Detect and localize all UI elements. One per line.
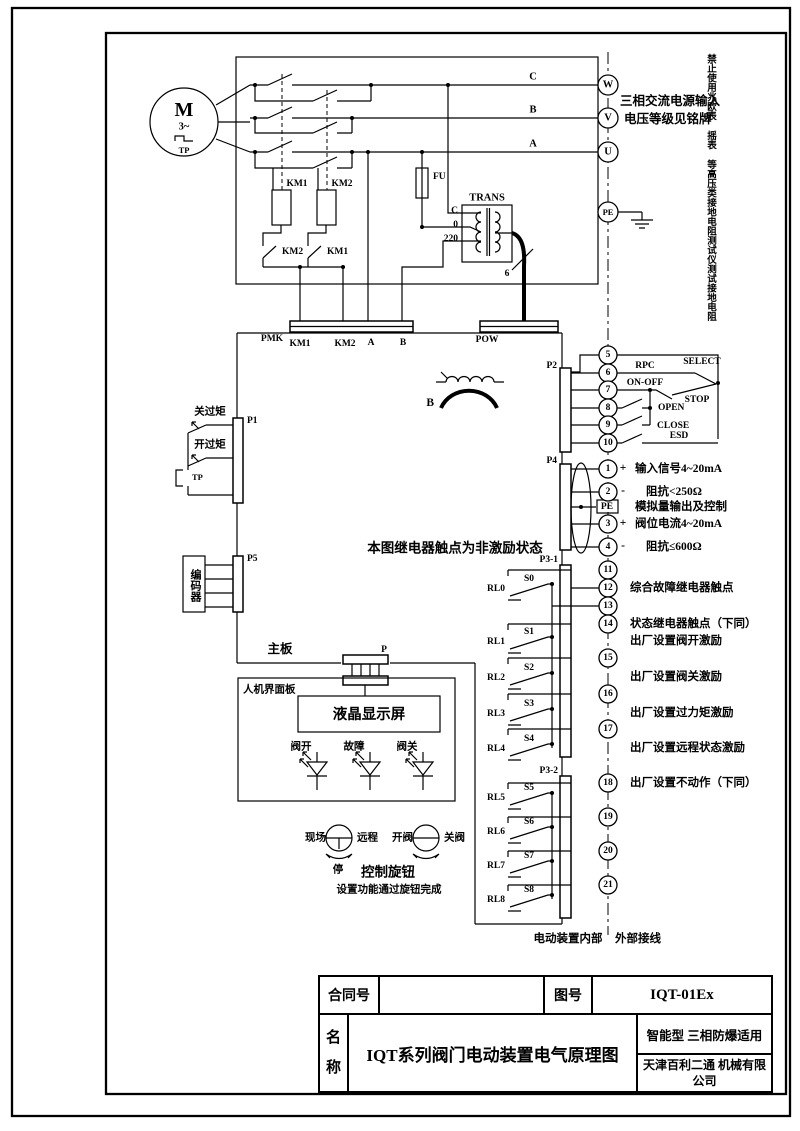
- schematic-page: M 3~ TP KM1 KM2 KM2 KM1 FU: [0, 0, 800, 1131]
- contract-no-label: 合同号: [318, 975, 380, 1015]
- pin-220-label: 220: [444, 234, 459, 244]
- figure-no-value: IQT-01Ex: [591, 975, 773, 1015]
- pin-c-label: C: [451, 206, 458, 216]
- rl8-label: RL8: [487, 895, 505, 905]
- terminal-1: 1: [606, 464, 611, 474]
- relay-contacts: RL0 S0 RL1 S1 RL2 S2 RL3 S3 RL4 S4 RL5 S…: [487, 570, 599, 911]
- rpc-label: RPC: [635, 361, 655, 371]
- hmi-label: 人机界面板: [243, 683, 296, 696]
- rl1-label: RL1: [487, 637, 505, 647]
- terminal-20: 20: [603, 846, 613, 856]
- contactor-coils: KM1 KM2 KM2 KM1: [263, 168, 353, 321]
- terminal-17: 17: [603, 724, 613, 734]
- terminal-6: 6: [606, 368, 611, 378]
- fuse-symbol: FU: [416, 152, 446, 227]
- motor-letter: M: [175, 99, 194, 121]
- rl5-label: RL5: [487, 793, 505, 803]
- p4-impedance-out-label: 阻抗≤600Ω: [646, 539, 702, 553]
- p31-note1: 综合故障继电器触点: [630, 580, 734, 594]
- strip-a-label: A: [368, 338, 375, 348]
- terminal-21: 21: [603, 880, 613, 890]
- rl4-label: RL4: [487, 744, 505, 754]
- ct-b-label: B: [426, 397, 434, 409]
- connector-strips: PMK KM1 KM2 A B POW: [261, 321, 558, 349]
- numbered-terminals: 5 6 7 8 9 10 1 2 3 4 11 12 13 14 15 16 1…: [599, 346, 617, 894]
- p-stack-connector: P: [343, 645, 388, 696]
- terminal-u: U: [604, 147, 612, 158]
- cable-count-label: 6: [505, 269, 510, 279]
- onoff-label: ON-OFF: [627, 378, 664, 388]
- motor-phase: 3~: [179, 122, 190, 133]
- rl3-label: RL3: [487, 709, 505, 719]
- figure-no-label: 图号: [543, 975, 593, 1015]
- terminal-11: 11: [604, 565, 613, 575]
- p4-signal-in-label: 输入信号4~20mA: [635, 461, 723, 475]
- p31-note4: 出厂设置阀关激励: [630, 669, 722, 683]
- s2-label: S2: [524, 663, 534, 673]
- terminal-19: 19: [603, 812, 613, 822]
- knob-closevalve-label: 关阀: [444, 831, 465, 844]
- phase-c-label: C: [529, 72, 537, 83]
- terminal-w: W: [603, 80, 614, 91]
- p32-note1: 出厂设置不动作（下同）: [630, 775, 757, 789]
- terminal-14: 14: [603, 619, 613, 629]
- p31-note6: 出厂设置远程状态激励: [630, 740, 745, 754]
- motor-symbol: M 3~ TP: [150, 85, 250, 156]
- led-closed-label: 阀关: [397, 740, 418, 753]
- p4-plus1: +: [620, 462, 627, 474]
- p32-label: P3-2: [540, 766, 559, 776]
- schematic-drawing: M 3~ TP KM1 KM2 KM2 KM1 FU: [0, 0, 800, 1131]
- terminal-8: 8: [606, 403, 611, 413]
- s3-label: S3: [524, 699, 534, 709]
- contract-no-value: [378, 975, 545, 1015]
- rl6-label: RL6: [487, 827, 505, 837]
- p4-impedance-in-label: 阻抗<250Ω: [646, 484, 702, 498]
- rl7-label: RL7: [487, 861, 505, 871]
- terminal-16: 16: [603, 689, 613, 699]
- led-closed-icon: [406, 752, 433, 790]
- led-open-label: 阀开: [291, 740, 312, 753]
- led-open-icon: [300, 752, 327, 790]
- p5-label: P5: [247, 554, 258, 564]
- p4-plus2: +: [620, 517, 627, 529]
- p31-note3: 出厂设置阀开激励: [630, 633, 722, 647]
- knob-openvalve-label: 开阀: [392, 831, 413, 844]
- current-transformer-icon: B: [426, 372, 504, 409]
- close-label: CLOSE: [657, 421, 689, 431]
- terminal-12: 12: [603, 583, 613, 593]
- rl0-label: RL0: [487, 584, 505, 594]
- terminal-pe: PE: [603, 207, 614, 217]
- knob-stop-label: 停: [333, 863, 344, 876]
- motor-tp: TP: [179, 145, 190, 155]
- open-torque-label: 开过矩: [194, 438, 226, 451]
- strip-km1-label: KM1: [289, 339, 310, 349]
- contactor-link-lines: [282, 74, 327, 190]
- strip-b-label: B: [400, 338, 407, 348]
- control-knobs: 现场 远程 停 开阀 关阀 控制旋钮 设置功能通过旋钮完成: [305, 825, 465, 896]
- terminal-18: 18: [603, 778, 613, 788]
- pin-0-label: 0: [453, 220, 458, 230]
- transformer-symbol: TRANS C 0 220: [402, 85, 512, 321]
- encoder-label: 编码器: [186, 560, 203, 610]
- knob-remote-label: 远程: [357, 831, 378, 844]
- p4-signal-out-label: 阀位电流4~20mA: [635, 516, 723, 530]
- terminal-5: 5: [606, 350, 611, 360]
- s6-label: S6: [524, 817, 534, 827]
- external-label: 外部接线: [614, 931, 661, 945]
- stop-label: STOP: [685, 395, 710, 405]
- megger-warning-note: 禁止使用兆欧表 摇表 等高压类接地电阻测试仪测试接地电阻: [702, 54, 717, 344]
- lcd-label: 液晶显示屏: [333, 705, 406, 723]
- p31-note5: 出厂设置过力矩激励: [630, 705, 734, 719]
- name-label: 名 称: [318, 1013, 349, 1093]
- s7-label: S7: [524, 851, 534, 861]
- transformer-label: TRANS: [469, 193, 505, 204]
- km2-aux-label: KM2: [282, 247, 303, 257]
- p31-note2: 状态继电器触点（下同）: [630, 616, 757, 630]
- knob-local-label: 现场: [305, 831, 326, 844]
- hmi-panel: 人机界面板 液晶显示屏 阀开 故障 阀关: [238, 678, 455, 801]
- terminal-7: 7: [606, 385, 611, 395]
- type-note: 智能型 三相防爆适用: [636, 1013, 773, 1055]
- open-label: OPEN: [658, 403, 685, 413]
- tp-contact-label: TP: [192, 472, 203, 482]
- pulse-wave-icon: [175, 136, 193, 141]
- drawing-name: IQT系列阀门电动装置电气原理图: [347, 1013, 638, 1093]
- fuse-label: FU: [433, 172, 446, 182]
- km1-aux-label: KM1: [327, 247, 348, 257]
- s8-label: S8: [524, 885, 534, 895]
- terminal-15: 15: [603, 653, 613, 663]
- pow-label: POW: [476, 335, 499, 345]
- km1-coil-label: KM1: [286, 179, 307, 189]
- terminal-10: 10: [603, 438, 613, 448]
- p4-wiring: PE + - + - 输入信号4~20mA 阻抗<250Ω 模拟量输出及控制 阀…: [571, 461, 727, 553]
- select-label: SELECT: [683, 357, 721, 367]
- knob-title: 控制旋钮: [361, 864, 415, 880]
- power-note-2: 电压等级见铭牌: [624, 111, 712, 126]
- knob-note: 设置功能通过旋钮完成: [337, 883, 442, 896]
- p4-minus1: -: [621, 485, 625, 497]
- phase-b-label: B: [529, 105, 536, 116]
- company-name: 天津百利二通 机械有限公司: [636, 1053, 773, 1093]
- phase-wiring: [250, 74, 598, 190]
- ground-icon: [618, 212, 653, 228]
- s5-label: S5: [524, 783, 534, 793]
- p4-pe-label: PE: [601, 502, 613, 512]
- s4-label: S4: [524, 734, 534, 744]
- p4-label: P4: [546, 456, 557, 466]
- terminal-9: 9: [606, 420, 611, 430]
- p1-label: P1: [247, 416, 258, 426]
- right-connector-bars: P2 P4 P3-1 P3-2: [540, 361, 571, 918]
- mainboard-label: 主板: [267, 641, 293, 656]
- close-torque-label: 关过矩: [194, 405, 226, 418]
- power-cable: 6: [505, 233, 533, 321]
- terminal-3: 3: [606, 519, 611, 529]
- internal-label: 电动装置内部: [534, 931, 603, 945]
- p4-minus2: -: [621, 540, 625, 552]
- p2-wiring: RPC SELECT ON-OFF STOP OPEN CLOSE ESD: [571, 355, 721, 443]
- terminal-v: V: [604, 113, 612, 124]
- rl2-label: RL2: [487, 673, 505, 683]
- s1-label: S1: [524, 627, 534, 637]
- p-label: P: [381, 645, 387, 655]
- terminal-4: 4: [606, 542, 611, 552]
- relay-annotations: 综合故障继电器触点 状态继电器触点（下同） 出厂设置阀开激励 出厂设置阀关激励 …: [630, 580, 757, 789]
- led-fault-label: 故障: [344, 740, 365, 753]
- strip-km2-label: KM2: [334, 339, 355, 349]
- terminal-13: 13: [603, 601, 613, 611]
- p31-label: P3-1: [540, 555, 559, 565]
- s0-label: S0: [524, 574, 534, 584]
- torque-switch-circuit: P1 关过矩 开过矩 TP: [176, 405, 258, 504]
- led-fault-icon: [353, 752, 380, 790]
- p4-analog-label: 模拟量输出及控制: [635, 499, 727, 513]
- drawing-borders: [12, 8, 790, 1116]
- km2-coil-label: KM2: [331, 179, 352, 189]
- phase-a-label: A: [529, 139, 537, 150]
- terminal-2: 2: [606, 487, 611, 497]
- esd-label: ESD: [670, 431, 689, 441]
- relay-state-note: 本图继电器触点为非激励状态: [367, 540, 543, 556]
- pmk-label: PMK: [261, 334, 284, 344]
- p2-label: P2: [546, 361, 557, 371]
